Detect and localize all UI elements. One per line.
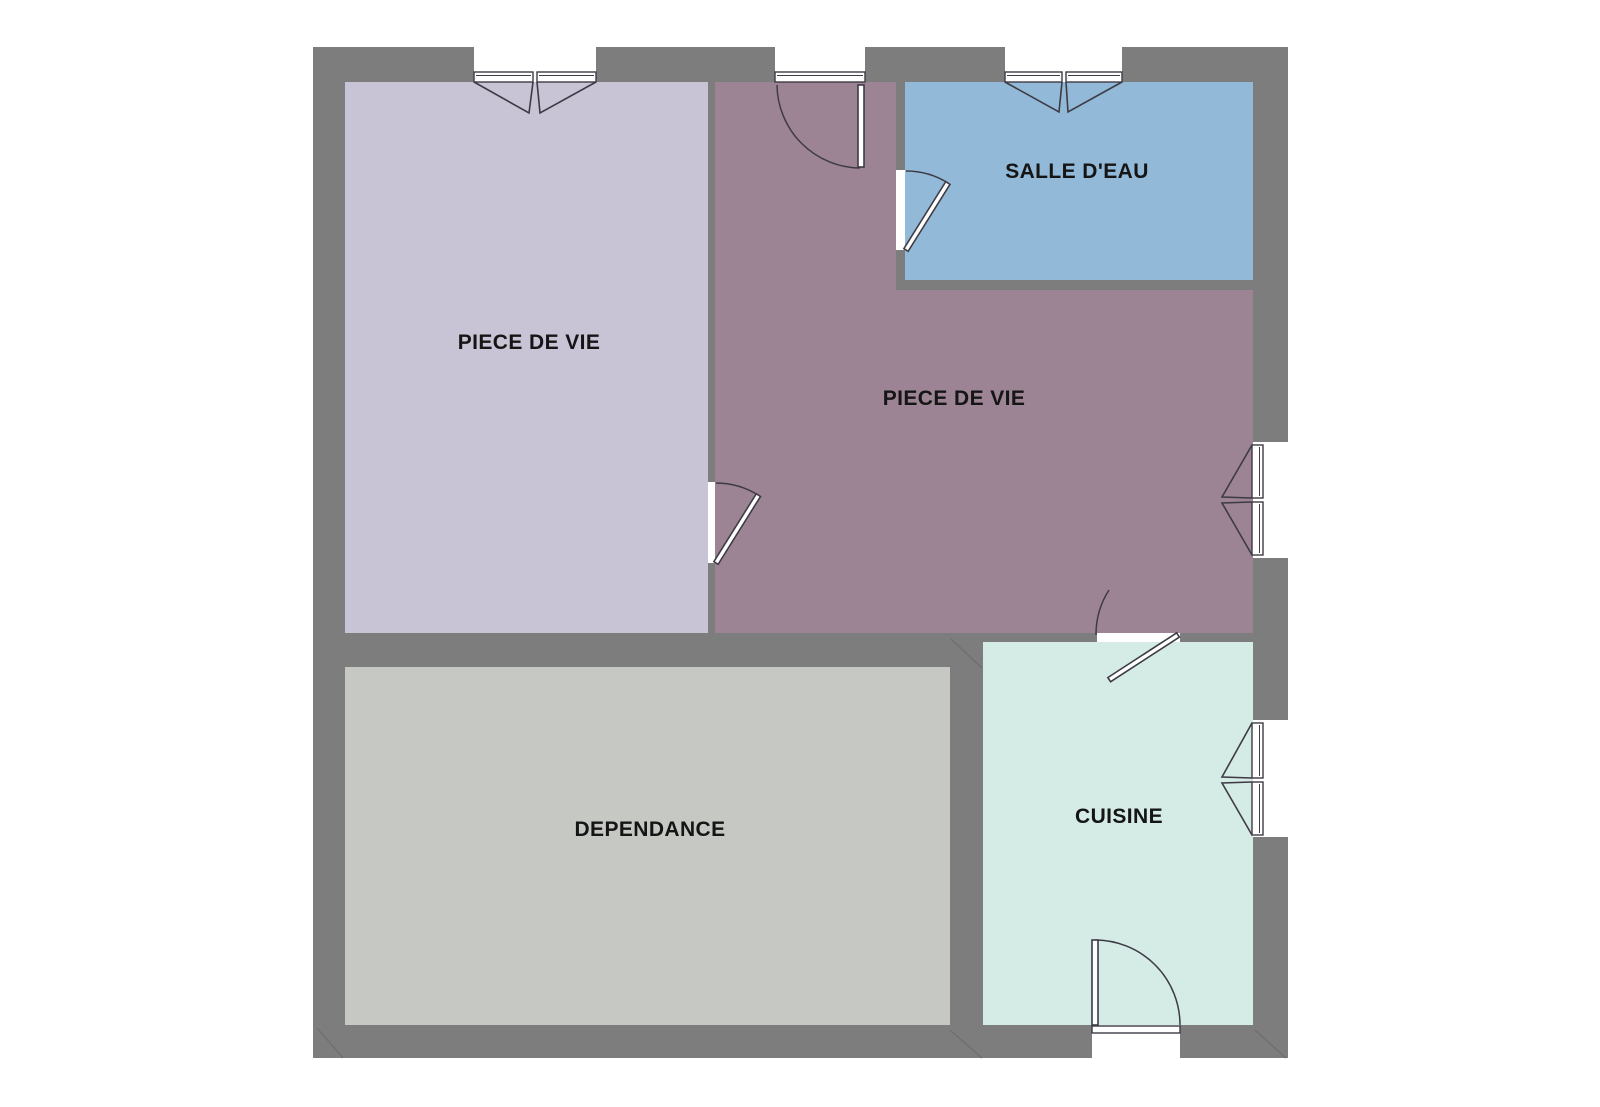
- room-cuisine: [983, 642, 1253, 1025]
- room-piece-de-vie-left: [345, 82, 708, 633]
- door-opening-kitchen-south: [1092, 1025, 1180, 1058]
- room-label-cuisine: CUISINE: [1075, 805, 1163, 829]
- window-opening-north-bathroom: [1005, 47, 1122, 82]
- room-label-piece-de-vie-left: PIECE DE VIE: [458, 331, 601, 355]
- door-opening-entrance: [775, 47, 865, 82]
- door-opening-bathroom: [896, 170, 905, 250]
- room-dependance: [345, 667, 950, 1025]
- door-opening-living-to-kitchen: [1097, 633, 1180, 642]
- window-opening-north-left: [474, 47, 596, 82]
- room-label-dependance: DEPENDANCE: [574, 818, 725, 842]
- room-label-salle-deau: SALLE D'EAU: [1005, 160, 1149, 184]
- door-opening-living-to-living: [708, 482, 715, 563]
- floor-plan: PIECE DE VIE PIECE DE VIE SALLE D'EAU DE…: [0, 0, 1600, 1107]
- room-label-piece-de-vie-main: PIECE DE VIE: [883, 387, 1026, 411]
- window-opening-east-living: [1253, 442, 1288, 558]
- window-opening-east-kitchen: [1253, 720, 1288, 837]
